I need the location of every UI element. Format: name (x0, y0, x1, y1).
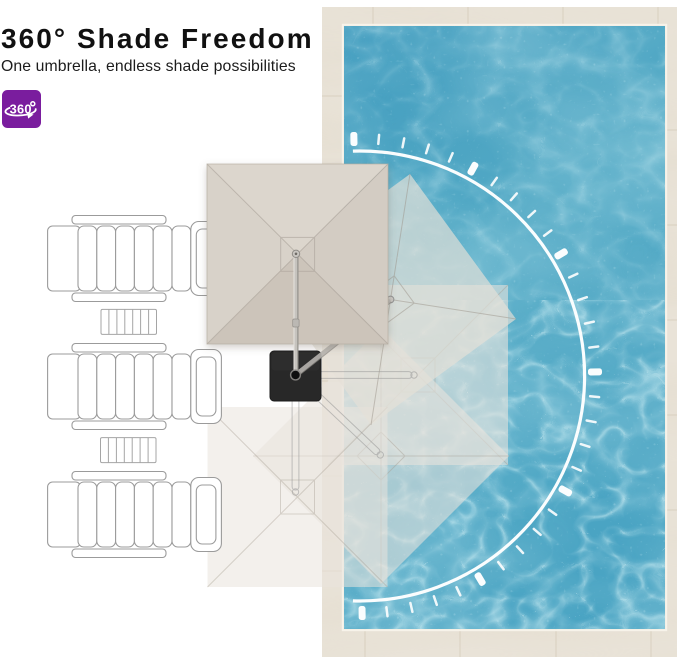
svg-text:360: 360 (10, 101, 32, 116)
